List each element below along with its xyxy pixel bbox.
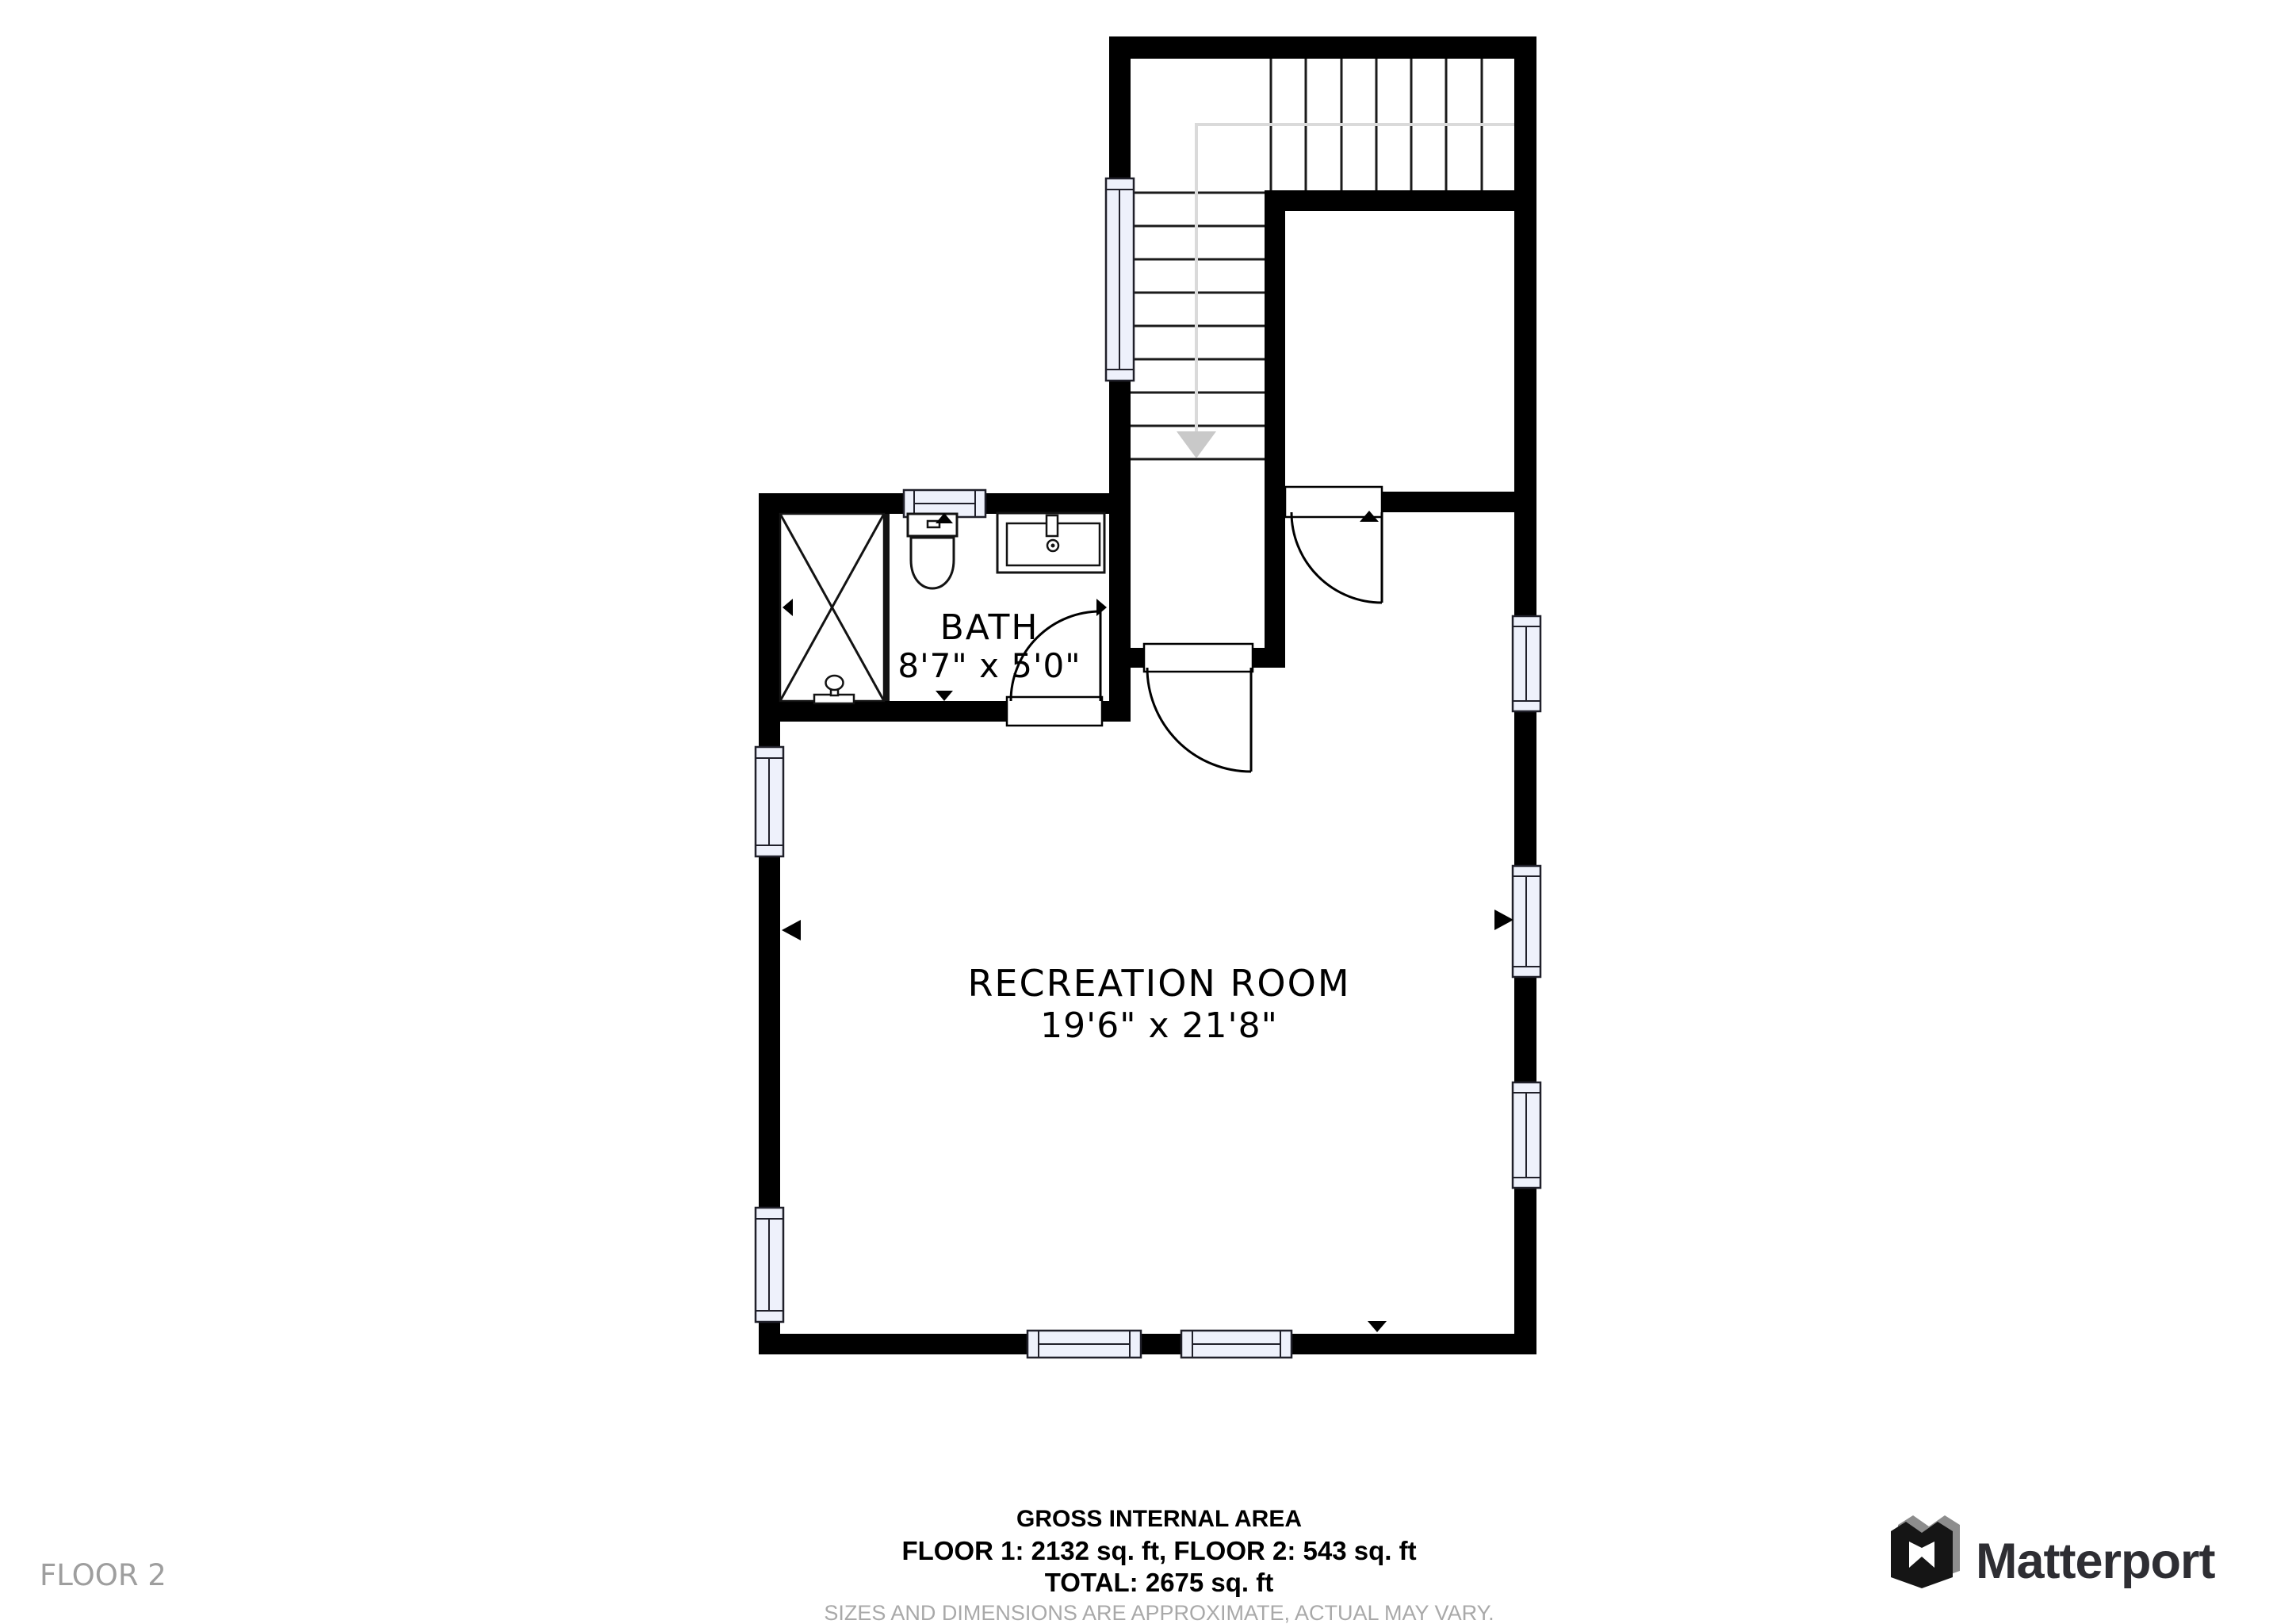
window xyxy=(1513,866,1540,977)
recreation-room-label: RECREATION ROOM xyxy=(967,962,1350,1005)
dim-arrow-down-icon xyxy=(936,691,953,701)
gross-area-summary: GROSS INTERNAL AREA FLOOR 1: 2132 sq. ft… xyxy=(824,1506,1494,1624)
window xyxy=(1027,1331,1141,1358)
window xyxy=(756,747,783,856)
sink-icon xyxy=(997,513,1104,573)
toilet-icon xyxy=(908,514,957,588)
floorplan-canvas: BATH 8'7" x 5'0" RECREATION ROOM 19'6" x… xyxy=(0,0,2296,1624)
stairs-down-arrow-icon xyxy=(1177,431,1216,458)
door-stair-landing xyxy=(1144,644,1253,772)
gross-area-floors: FLOOR 1: 2132 sq. ft, FLOOR 2: 543 sq. f… xyxy=(901,1536,1416,1565)
floorplan-page: BATH 8'7" x 5'0" RECREATION ROOM 19'6" x… xyxy=(0,0,2296,1624)
staircase xyxy=(1131,59,1514,459)
bath-room-dimensions: 8'7" x 5'0" xyxy=(897,646,1081,685)
windows xyxy=(756,178,1540,1358)
gross-area-total: TOTAL: 2675 sq. ft xyxy=(1045,1568,1274,1597)
stairs-walk-line xyxy=(1196,124,1514,433)
dimension-arrows xyxy=(782,511,1513,1332)
window xyxy=(1513,1082,1540,1188)
wall-stair-top xyxy=(1109,36,1536,59)
window xyxy=(1513,616,1540,711)
dim-arrow-down-icon xyxy=(1368,1321,1387,1332)
shower-icon xyxy=(780,514,890,703)
wall-under-upper-stairs xyxy=(1265,190,1514,211)
wall-bottom xyxy=(759,1334,1536,1354)
window xyxy=(1106,178,1134,381)
bath-room-label: BATH xyxy=(940,607,1039,648)
dimensions-disclaimer: SIZES AND DIMENSIONS ARE APPROXIMATE, AC… xyxy=(824,1601,1494,1624)
wall-landing-room-left xyxy=(1265,190,1285,668)
gross-area-title: GROSS INTERNAL AREA xyxy=(1016,1506,1302,1532)
floor-number-label: FLOOR 2 xyxy=(40,1558,166,1592)
door-landing-room xyxy=(1285,487,1382,603)
dim-arrow-left-icon xyxy=(782,920,801,940)
matterport-logo: Matterport xyxy=(1891,1515,2216,1589)
matterport-wordmark: Matterport xyxy=(1976,1534,2216,1589)
window xyxy=(1181,1331,1291,1358)
window xyxy=(756,1208,783,1322)
dim-arrow-right-icon xyxy=(1494,910,1513,930)
recreation-room-dimensions: 19'6" x 21'8" xyxy=(1040,1005,1278,1046)
matterport-logo-icon xyxy=(1891,1515,1960,1588)
